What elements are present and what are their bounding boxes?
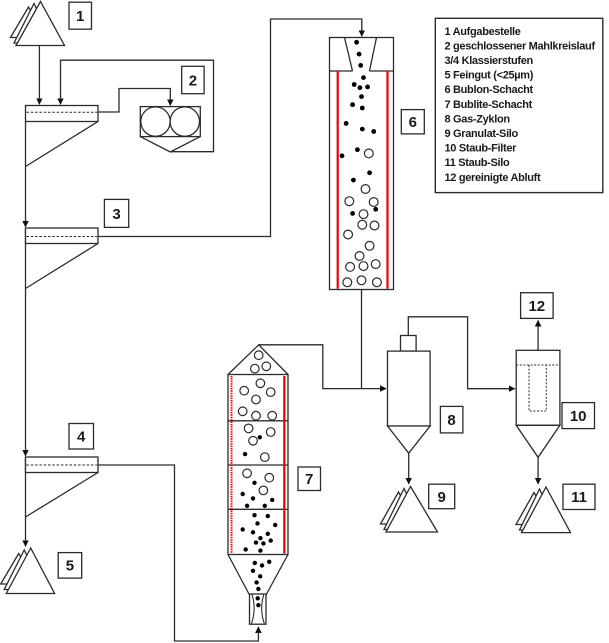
svg-text:8: 8 — [447, 412, 455, 429]
svg-text:3: 3 — [112, 206, 120, 223]
svg-text:2 geschlossener Mahlkreislauf: 2 geschlossener Mahlkreislauf — [445, 40, 596, 52]
svg-text:11: 11 — [571, 489, 587, 506]
svg-text:12: 12 — [528, 298, 545, 315]
svg-text:5 Feingut (<25µm): 5 Feingut (<25µm) — [445, 70, 534, 82]
svg-text:7 Bublite-Schacht: 7 Bublite-Schacht — [445, 99, 533, 111]
svg-text:10: 10 — [570, 408, 587, 425]
svg-text:12 gereinigte Abluft: 12 gereinigte Abluft — [445, 172, 542, 184]
svg-text:6 Bublon-Schacht: 6 Bublon-Schacht — [445, 84, 534, 96]
svg-text:9: 9 — [438, 489, 446, 506]
svg-text:11 Staub-Silo: 11 Staub-Silo — [445, 157, 511, 169]
svg-text:6: 6 — [409, 114, 417, 131]
svg-text:3/4 Klassierstufen: 3/4 Klassierstufen — [445, 55, 534, 67]
svg-text:8 Gas-Zyklon: 8 Gas-Zyklon — [445, 113, 511, 125]
svg-text:4: 4 — [77, 429, 86, 446]
svg-text:1: 1 — [76, 8, 84, 25]
svg-text:1 Aufgabestelle: 1 Aufgabestelle — [445, 26, 521, 38]
svg-text:10 Staub-Filter: 10 Staub-Filter — [445, 143, 518, 155]
svg-text:7: 7 — [305, 471, 313, 488]
svg-text:2: 2 — [189, 72, 197, 89]
svg-text:9 Granulat-Silo: 9 Granulat-Silo — [445, 128, 519, 140]
svg-text:5: 5 — [66, 558, 74, 575]
